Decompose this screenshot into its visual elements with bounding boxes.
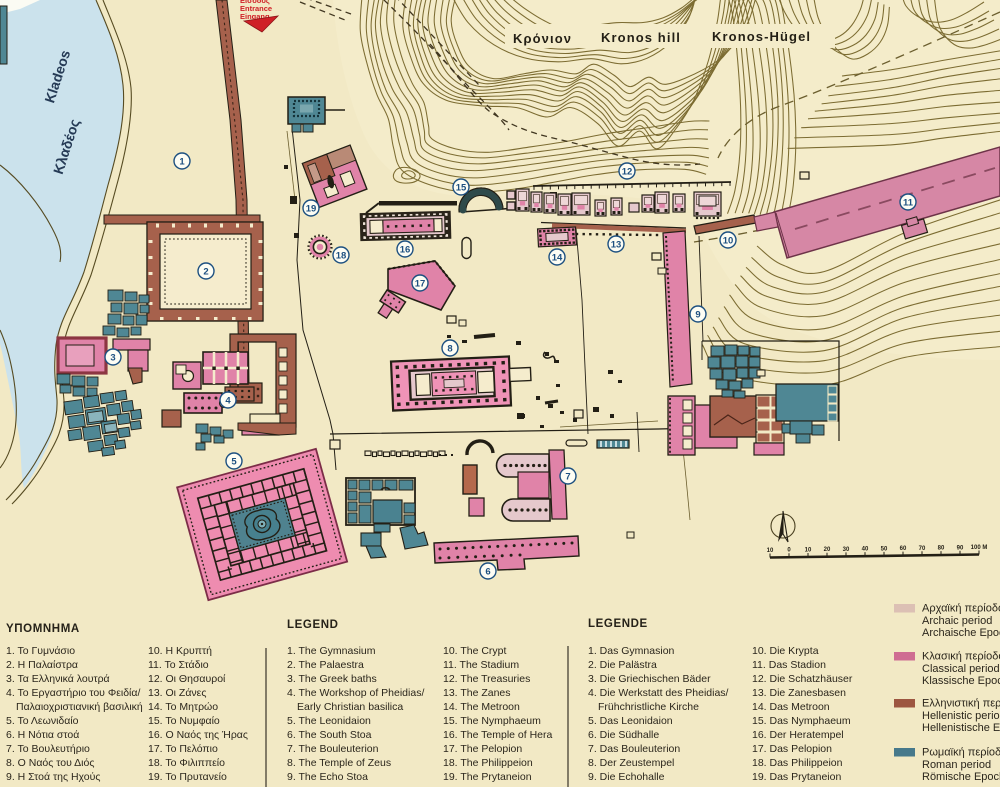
svg-text:16. The Temple of Hera: 16. The Temple of Hera bbox=[443, 729, 553, 741]
svg-text:3. The Greek baths: 3. The Greek baths bbox=[287, 673, 377, 685]
svg-text:60: 60 bbox=[900, 546, 907, 552]
svg-text:8. Ο Ναός του Διός: 8. Ο Ναός του Διός bbox=[6, 757, 94, 769]
svg-text:4: 4 bbox=[225, 395, 231, 406]
svg-text:12: 12 bbox=[622, 166, 633, 177]
svg-text:13. Die Zanesbasen: 13. Die Zanesbasen bbox=[752, 687, 846, 699]
svg-text:13: 13 bbox=[611, 239, 622, 250]
svg-text:Roman period: Roman period bbox=[922, 759, 991, 771]
svg-text:80: 80 bbox=[938, 546, 945, 552]
svg-text:17: 17 bbox=[415, 278, 426, 289]
svg-text:3. Die Griechischen Bäder: 3. Die Griechischen Bäder bbox=[588, 673, 711, 685]
svg-text:16. Ο Ναός της Ήρας: 16. Ο Ναός της Ήρας bbox=[148, 729, 248, 741]
svg-text:Hellenistische Epoche: Hellenistische Epoche bbox=[922, 722, 1000, 734]
svg-text:14: 14 bbox=[552, 252, 563, 263]
svg-text:2. Die Palästra: 2. Die Palästra bbox=[588, 659, 657, 671]
svg-text:70: 70 bbox=[919, 546, 926, 552]
svg-text:19. The Prytaneion: 19. The Prytaneion bbox=[443, 771, 532, 783]
svg-text:100 M: 100 M bbox=[971, 545, 988, 551]
svg-text:8: 8 bbox=[447, 343, 452, 354]
svg-text:7. Το Βουλευτήριο: 7. Το Βουλευτήριο bbox=[6, 743, 90, 755]
svg-text:1: 1 bbox=[179, 156, 185, 167]
svg-text:9. Die Echohalle: 9. Die Echohalle bbox=[588, 771, 665, 783]
svg-text:16. Der Heratempel: 16. Der Heratempel bbox=[752, 729, 844, 741]
svg-text:40: 40 bbox=[862, 547, 869, 553]
svg-text:90: 90 bbox=[957, 545, 964, 551]
svg-text:Ρωμαϊκή περίοδος: Ρωμαϊκή περίοδος bbox=[922, 747, 1000, 759]
svg-text:Ελληνιστική περίοδος: Ελληνιστική περίοδος bbox=[922, 698, 1000, 710]
svg-text:Römische Epoche: Römische Epoche bbox=[922, 771, 1000, 783]
svg-text:Early Christian basilica: Early Christian basilica bbox=[297, 701, 403, 713]
svg-text:Klassische Epoche: Klassische Epoche bbox=[922, 675, 1000, 687]
svg-text:6. The South Stoa: 6. The South Stoa bbox=[287, 729, 372, 741]
svg-text:4. Το Εργαστήριο του Φειδία/: 4. Το Εργαστήριο του Φειδία/ bbox=[6, 687, 140, 699]
svg-text:Archaic period: Archaic period bbox=[922, 615, 992, 627]
svg-text:7: 7 bbox=[565, 471, 570, 482]
svg-text:LEGENDE: LEGENDE bbox=[588, 618, 648, 630]
svg-text:14. The Metroon: 14. The Metroon bbox=[443, 701, 520, 713]
svg-text:Αρχαϊκή περίοδος: Αρχαϊκή περίοδος bbox=[922, 603, 1000, 615]
svg-text:30: 30 bbox=[843, 547, 850, 553]
svg-text:19: 19 bbox=[306, 203, 317, 214]
svg-text:Κρόνιον: Κρόνιον bbox=[513, 31, 572, 46]
svg-text:2: 2 bbox=[203, 266, 208, 277]
svg-text:11. Το Στάδιο: 11. Το Στάδιο bbox=[148, 659, 209, 671]
svg-text:Κλασική περίοδος: Κλασική περίοδος bbox=[922, 651, 1000, 663]
svg-text:5. Das Leonidaion: 5. Das Leonidaion bbox=[588, 715, 673, 727]
svg-text:7. The Bouleuterion: 7. The Bouleuterion bbox=[287, 743, 379, 755]
svg-text:9. The Echo Stoa: 9. The Echo Stoa bbox=[287, 771, 368, 783]
svg-text:18. The Philippeion: 18. The Philippeion bbox=[443, 757, 533, 769]
svg-text:10. The Crypt: 10. The Crypt bbox=[443, 645, 507, 657]
svg-text:6: 6 bbox=[485, 566, 490, 577]
svg-text:7. Das Bouleuterion: 7. Das Bouleuterion bbox=[588, 743, 680, 755]
svg-text:1. Το Γυμνάσιο: 1. Το Γυμνάσιο bbox=[6, 645, 75, 657]
svg-text:18: 18 bbox=[336, 250, 347, 261]
svg-text:5: 5 bbox=[231, 456, 237, 467]
svg-text:Kronos-Hügel: Kronos-Hügel bbox=[712, 29, 811, 44]
svg-text:8. Der Zeustempel: 8. Der Zeustempel bbox=[588, 757, 674, 769]
svg-text:13. Οι Ζάνες: 13. Οι Ζάνες bbox=[148, 687, 206, 699]
svg-text:20: 20 bbox=[824, 547, 831, 553]
svg-text:15. The Nymphaeum: 15. The Nymphaeum bbox=[443, 715, 541, 727]
svg-text:19. Το Πρυτανείο: 19. Το Πρυτανείο bbox=[148, 771, 227, 783]
svg-text:18. Το Φιλιππείο: 18. Το Φιλιππείο bbox=[148, 757, 225, 769]
svg-text:1. The Gymnasium: 1. The Gymnasium bbox=[287, 645, 376, 657]
svg-text:2. The Palaestra: 2. The Palaestra bbox=[287, 659, 364, 671]
svg-text:Classical period: Classical period bbox=[922, 663, 1000, 675]
svg-text:19. Das Prytaneion: 19. Das Prytaneion bbox=[752, 771, 841, 783]
svg-text:13. The Zanes: 13. The Zanes bbox=[443, 687, 511, 699]
svg-text:10: 10 bbox=[723, 235, 734, 246]
svg-text:14. Το Μητρώο: 14. Το Μητρώο bbox=[148, 701, 218, 713]
svg-text:14. Das Metroon: 14. Das Metroon bbox=[752, 701, 830, 713]
svg-text:4. Die Werkstatt des Pheidias/: 4. Die Werkstatt des Pheidias/ bbox=[588, 687, 729, 699]
svg-text:6. Die Südhalle: 6. Die Südhalle bbox=[588, 729, 659, 741]
svg-text:15. Das Nymphaeum: 15. Das Nymphaeum bbox=[752, 715, 851, 727]
svg-text:50: 50 bbox=[881, 546, 888, 552]
svg-text:Παλαιοχριστιανική βασιλική: Παλαιοχριστιανική βασιλική bbox=[16, 701, 143, 713]
svg-text:1. Das Gymnasion: 1. Das Gymnasion bbox=[588, 645, 675, 657]
svg-text:12. The Treasuries: 12. The Treasuries bbox=[443, 673, 530, 685]
svg-text:11: 11 bbox=[903, 197, 914, 208]
svg-text:11. The Stadium: 11. The Stadium bbox=[443, 659, 519, 671]
svg-text:ΥΠΟΜΝΗΜΑ: ΥΠΟΜΝΗΜΑ bbox=[6, 623, 80, 635]
svg-text:Hellenistic period: Hellenistic period bbox=[922, 710, 1000, 722]
svg-text:10. Die Krypta: 10. Die Krypta bbox=[752, 645, 819, 657]
svg-text:5. Το Λεωνιδαίο: 5. Το Λεωνιδαίο bbox=[6, 715, 79, 727]
svg-text:5. The Leonidaion: 5. The Leonidaion bbox=[287, 715, 371, 727]
svg-text:15: 15 bbox=[456, 182, 467, 193]
svg-text:Frühchristliche Kirche: Frühchristliche Kirche bbox=[598, 701, 699, 713]
svg-text:9: 9 bbox=[695, 309, 700, 320]
svg-text:2. Η Παλαίστρα: 2. Η Παλαίστρα bbox=[6, 659, 78, 671]
svg-text:Archaische Epoche: Archaische Epoche bbox=[922, 627, 1000, 639]
svg-text:15. Το Νυμφαίο: 15. Το Νυμφαίο bbox=[148, 715, 220, 727]
svg-text:12. Οι Θησαυροί: 12. Οι Θησαυροί bbox=[148, 673, 226, 685]
svg-text:10. Η Κρυπτή: 10. Η Κρυπτή bbox=[148, 645, 212, 657]
svg-text:8. The Temple of Zeus: 8. The Temple of Zeus bbox=[287, 757, 391, 769]
svg-text:11. Das Stadion: 11. Das Stadion bbox=[752, 659, 826, 671]
svg-text:LEGEND: LEGEND bbox=[287, 619, 339, 631]
svg-text:12. Die Schatzhäuser: 12. Die Schatzhäuser bbox=[752, 673, 853, 685]
svg-text:10: 10 bbox=[767, 548, 774, 554]
svg-text:17. Το Πελόπιο: 17. Το Πελόπιο bbox=[148, 743, 218, 755]
svg-text:4. The Workshop of Pheidias/: 4. The Workshop of Pheidias/ bbox=[287, 687, 424, 699]
svg-text:17. Das Pelopion: 17. Das Pelopion bbox=[752, 743, 832, 755]
svg-text:3. Τα Ελληνικά λουτρά: 3. Τα Ελληνικά λουτρά bbox=[6, 673, 110, 685]
svg-text:16: 16 bbox=[400, 244, 411, 255]
svg-text:17. The Pelopion: 17. The Pelopion bbox=[443, 743, 522, 755]
svg-text:10: 10 bbox=[805, 548, 812, 554]
svg-text:3: 3 bbox=[110, 352, 115, 363]
svg-text:9. Η Στοά της Ηχούς: 9. Η Στοά της Ηχούς bbox=[6, 771, 100, 783]
svg-text:18. Das Philippeion: 18. Das Philippeion bbox=[752, 757, 843, 769]
svg-text:6. Η Νότια στοά: 6. Η Νότια στοά bbox=[6, 729, 79, 741]
svg-text:Kronos hill: Kronos hill bbox=[601, 30, 681, 45]
